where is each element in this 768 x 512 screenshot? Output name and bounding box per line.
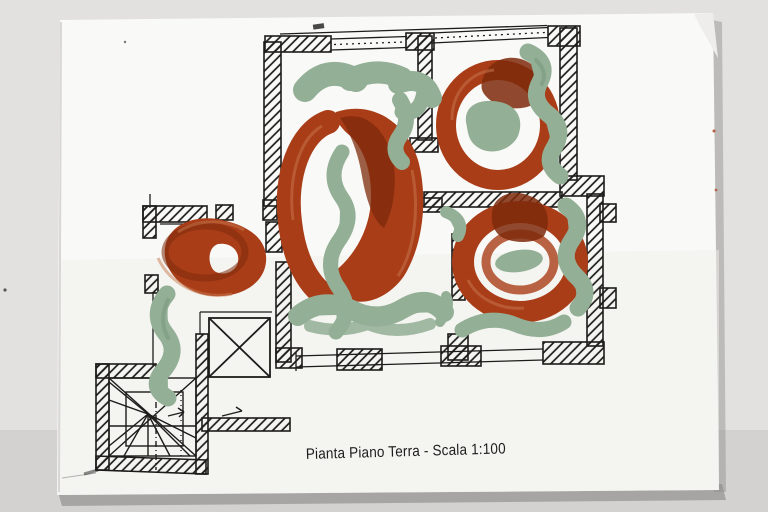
wall-segment (560, 28, 577, 180)
wall-pier (337, 349, 382, 370)
wall-segment (96, 364, 109, 470)
door-jamb (263, 200, 277, 220)
paper-speck (124, 41, 126, 43)
wall-segment (202, 418, 290, 431)
wall-segment (422, 198, 442, 212)
wall-block (145, 275, 158, 293)
wall-segment (276, 262, 291, 362)
wall-pilaster (600, 204, 616, 222)
door-jamb (410, 138, 438, 152)
wall-segment (96, 456, 206, 474)
wall-pier (543, 342, 604, 364)
brush-stroke (462, 320, 564, 330)
red-speck (713, 130, 716, 133)
floor-plan-painting: Pianta Piano Terra - Scala 1:100 (0, 0, 768, 512)
background-speck (3, 288, 6, 291)
wall-block (216, 205, 233, 220)
red-speck (715, 189, 718, 192)
brush-stroke (395, 100, 406, 162)
wall-segment (196, 334, 208, 474)
artwork-photo: Pianta Piano Terra - Scala 1:100 (0, 0, 768, 512)
brush-stroke (310, 324, 430, 330)
wall-pier (276, 348, 302, 368)
wall-pilaster (600, 288, 616, 308)
wall-segment (143, 206, 156, 238)
brush-accent (163, 300, 168, 338)
